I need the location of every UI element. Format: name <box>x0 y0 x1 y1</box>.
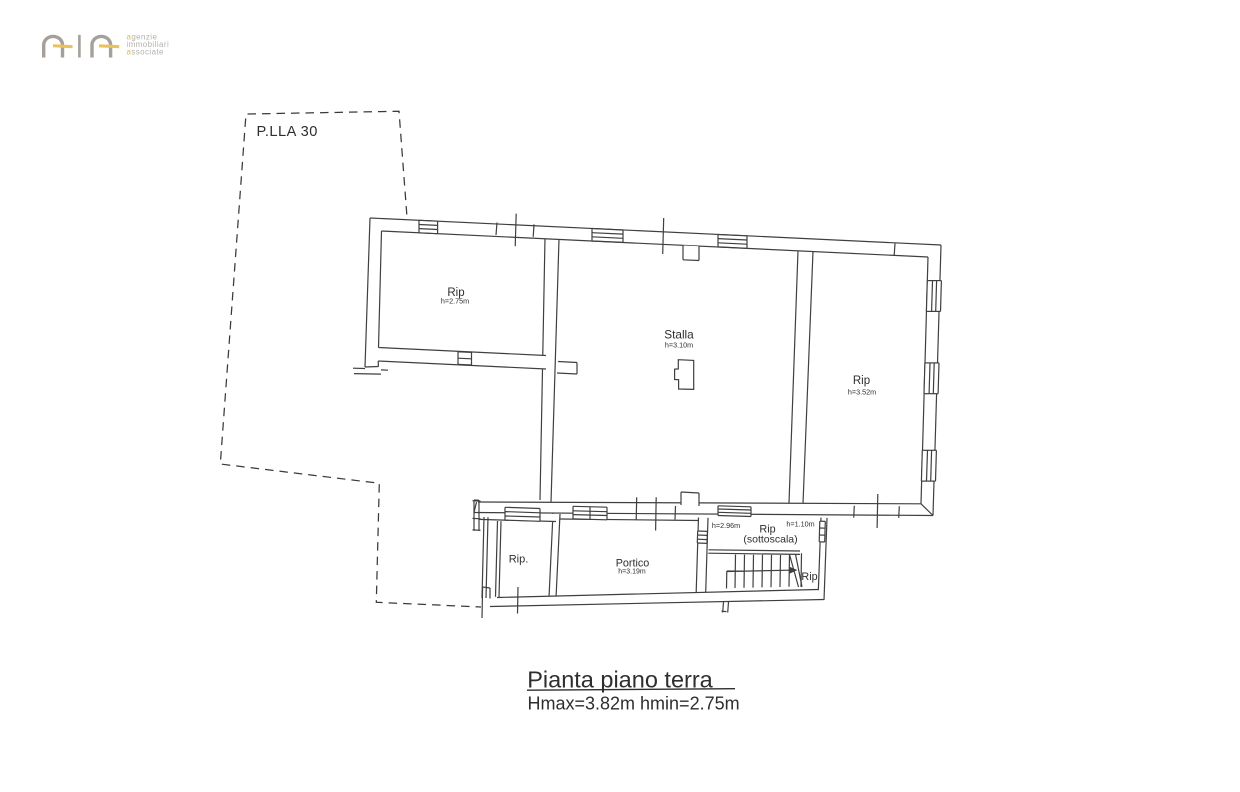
svg-text:h=2.75m: h=2.75m <box>441 297 469 306</box>
svg-text:Hmax=3.82m hmin=2.75m: Hmax=3.82m hmin=2.75m <box>528 694 740 714</box>
svg-text:h=3.52m: h=3.52m <box>848 388 876 397</box>
svg-text:(sottoscala): (sottoscala) <box>743 534 797 546</box>
svg-text:Rip: Rip <box>801 571 817 583</box>
svg-text:Rip.: Rip. <box>509 554 529 566</box>
svg-text:associate: associate <box>127 48 165 57</box>
svg-text:Rip: Rip <box>853 375 870 387</box>
svg-text:P.LLA 30: P.LLA 30 <box>257 124 318 140</box>
svg-text:h=2.96m: h=2.96m <box>712 521 740 530</box>
svg-text:h=3.10m: h=3.10m <box>665 341 693 350</box>
svg-text:h=1.10m: h=1.10m <box>786 519 814 528</box>
svg-text:h=3.19m: h=3.19m <box>618 569 646 576</box>
svg-text:Stalla: Stalla <box>664 328 694 342</box>
